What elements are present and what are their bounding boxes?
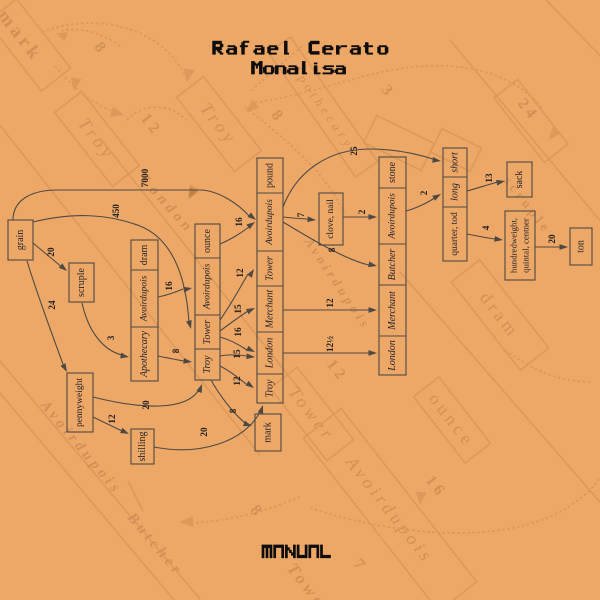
svg-text:long: long [450, 183, 461, 201]
svg-text:8: 8 [171, 348, 181, 353]
svg-text:7000: 7000 [140, 168, 150, 187]
svg-text:Avoirdupois: Avoirdupois [388, 193, 398, 240]
svg-text:12: 12 [107, 414, 117, 424]
svg-text:25: 25 [349, 146, 359, 156]
svg-text:mark: mark [263, 422, 274, 443]
svg-text:grain: grain [15, 230, 26, 251]
svg-text:15: 15 [233, 304, 243, 314]
svg-text:stone: stone [387, 161, 398, 183]
svg-text:Merchant: Merchant [265, 290, 276, 330]
svg-text:hundredweight,: hundredweight, [509, 218, 519, 273]
svg-text:20: 20 [199, 427, 209, 437]
svg-text:dram: dram [139, 245, 150, 266]
svg-text:2: 2 [357, 209, 367, 214]
svg-text:20: 20 [547, 234, 557, 244]
svg-text:7: 7 [296, 212, 306, 217]
svg-text:20: 20 [46, 247, 56, 257]
svg-text:4: 4 [481, 225, 491, 230]
svg-text:16: 16 [234, 217, 244, 227]
svg-text:24: 24 [47, 300, 57, 310]
svg-text:13: 13 [484, 173, 494, 183]
svg-text:15: 15 [232, 349, 242, 359]
svg-text:450: 450 [111, 204, 121, 218]
svg-text:2: 2 [419, 190, 429, 195]
svg-text:Avoirdupois: Avoirdupois [203, 263, 213, 310]
svg-text:Apothecary: Apothecary [139, 330, 150, 378]
svg-text:scruple: scruple [76, 268, 87, 297]
svg-text:London: London [387, 340, 398, 372]
svg-text:Tower: Tower [265, 256, 276, 281]
svg-text:ounce: ounce [202, 229, 213, 253]
svg-text:8: 8 [228, 408, 238, 413]
svg-text:12½: 12½ [325, 336, 335, 352]
svg-text:Butcher: Butcher [387, 249, 398, 281]
svg-text:Avoirdupois: Avoirdupois [265, 199, 275, 246]
svg-text:Avoirdupois: Avoirdupois [140, 275, 150, 322]
svg-text:pound: pound [265, 163, 276, 188]
svg-text:Troy: Troy [265, 379, 276, 398]
svg-text:Merchant: Merchant [387, 291, 398, 331]
svg-text:clove, nail: clove, nail [326, 199, 336, 239]
svg-text:quarter, tod: quarter, tod [450, 212, 460, 256]
svg-text:12: 12 [325, 298, 335, 308]
svg-text:ton: ton [576, 240, 587, 253]
svg-text:16: 16 [233, 327, 243, 337]
svg-text:London: London [265, 338, 276, 370]
svg-text:12: 12 [232, 376, 242, 386]
svg-text:sack: sack [514, 171, 525, 189]
svg-text:8: 8 [327, 247, 337, 252]
svg-text:quintal, centner: quintal, centner [521, 218, 531, 273]
svg-text:Troy: Troy [202, 355, 213, 374]
svg-text:pennyweight: pennyweight [75, 378, 85, 427]
svg-text:12: 12 [235, 268, 245, 278]
svg-text:20: 20 [141, 400, 151, 410]
svg-text:Tower: Tower [202, 320, 213, 345]
svg-text:short: short [450, 152, 461, 173]
svg-text:3: 3 [106, 335, 116, 340]
svg-text:16: 16 [164, 281, 174, 291]
svg-text:shilling: shilling [137, 431, 148, 461]
